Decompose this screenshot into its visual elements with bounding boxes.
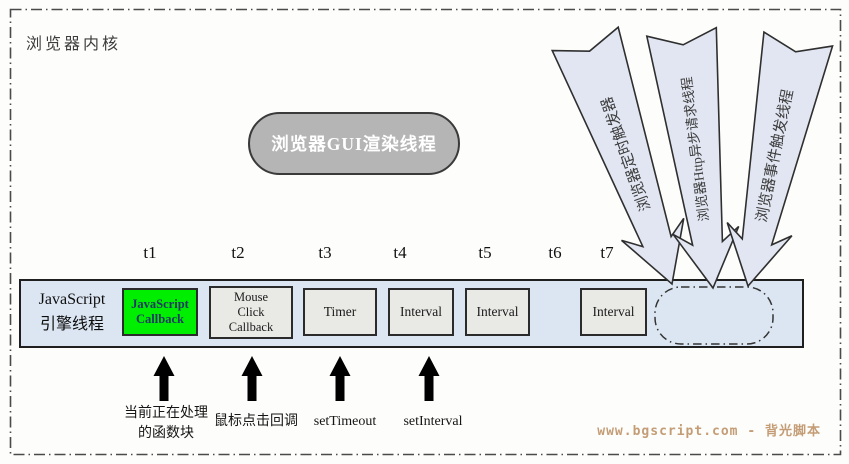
annotation-settimeout: setTimeout xyxy=(314,412,377,432)
diagram-graphics-layer: 浏览器定时触发器 浏览器Http异步请求线程 浏览器事件触发线程 xyxy=(0,0,849,464)
gui-render-thread-label: 浏览器GUI渲染线程 xyxy=(271,131,437,156)
engine-thread-label: JavaScript 引擎线程 xyxy=(24,288,120,338)
pointer-arrow-setinterval xyxy=(419,356,440,401)
tick-t5: t5 xyxy=(478,243,491,263)
tick-t4: t4 xyxy=(393,243,406,263)
slot-interval-2: Interval xyxy=(465,288,530,336)
pointer-arrow-current xyxy=(154,356,175,401)
pointer-arrow-settimeout xyxy=(330,356,351,401)
tick-t1: t1 xyxy=(143,243,156,263)
slot-mouse-click-callback: Mouse Click Callback xyxy=(209,286,293,339)
watermark: www.bgscript.com - 背光脚本 xyxy=(597,420,821,439)
browser-kernel-diagram: 浏览器定时触发器 浏览器Http异步请求线程 浏览器事件触发线程 浏览器内核 浏… xyxy=(0,0,849,464)
slot-javascript-callback: JavaScript Callback xyxy=(122,288,198,336)
tick-t6: t6 xyxy=(548,243,561,263)
tick-t7: t7 xyxy=(600,243,613,263)
kernel-title: 浏览器内核 xyxy=(26,30,121,54)
annotation-current-block: 当前正在处理 的函数块 xyxy=(124,404,208,445)
gui-render-thread: 浏览器GUI渲染线程 xyxy=(248,112,460,175)
pointer-arrow-mouse xyxy=(242,356,263,401)
event-trigger-arrow: 浏览器事件触发线程 xyxy=(714,32,833,293)
slot-timer: Timer xyxy=(303,288,377,336)
slot-interval-1: Interval xyxy=(388,288,454,336)
tick-t3: t3 xyxy=(318,243,331,263)
annotation-mouse-callback: 鼠标点击回调 xyxy=(214,412,298,432)
tick-t2: t2 xyxy=(231,243,244,263)
slot-interval-3: Interval xyxy=(580,288,647,336)
annotation-setinterval: setInterval xyxy=(403,412,462,432)
